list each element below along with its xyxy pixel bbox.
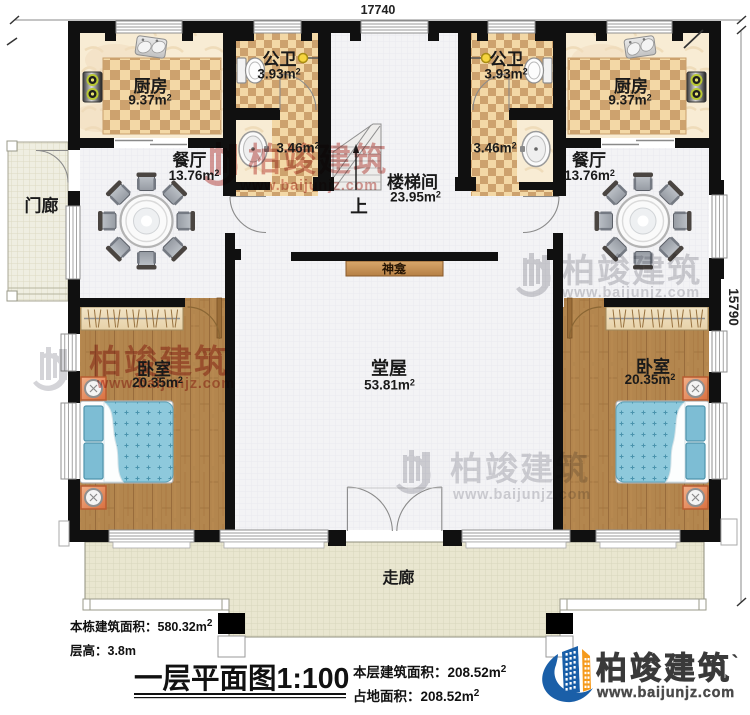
svg-text:神龛: 神龛 [382, 261, 407, 276]
svg-text:3.93m2: 3.93m2 [484, 67, 527, 82]
svg-text:柏竣建筑`: 柏竣建筑` [596, 651, 741, 686]
svg-text:3.46m2: 3.46m2 [473, 141, 516, 156]
svg-text:9.37m2: 9.37m2 [128, 93, 171, 108]
svg-text:3.46m2: 3.46m2 [276, 141, 319, 156]
svg-text:www.baijunjz.com: www.baijunjz.com [561, 285, 700, 301]
svg-text:餐厅: 餐厅 [572, 150, 606, 170]
svg-text:占地面积：208.52m2: 占地面积：208.52m2 [353, 688, 480, 704]
svg-text:13.76m2: 13.76m2 [564, 168, 615, 183]
svg-text:本层建筑面积：208.52m2: 本层建筑面积：208.52m2 [353, 664, 507, 680]
svg-text:上: 上 [350, 197, 368, 217]
svg-text:柏竣建筑: 柏竣建筑 [450, 450, 590, 487]
svg-text:13.76m2: 13.76m2 [169, 168, 220, 183]
svg-text:堂屋: 堂屋 [371, 358, 407, 379]
svg-text:餐厅: 餐厅 [173, 150, 207, 170]
svg-text:17740: 17740 [361, 3, 396, 17]
svg-text:9.37m2: 9.37m2 [608, 93, 651, 108]
svg-text:15790: 15790 [726, 288, 741, 326]
svg-text:门廊: 门廊 [25, 196, 59, 216]
svg-text:53.81m2: 53.81m2 [364, 378, 415, 393]
svg-text:本栋建筑面积：580.32m2: 本栋建筑面积：580.32m2 [70, 618, 213, 634]
svg-text:www.baijunjz.com: www.baijunjz.com [596, 685, 735, 701]
svg-text:www.baijunjz.com: www.baijunjz.com [239, 178, 378, 194]
svg-text:3.93m2: 3.93m2 [257, 67, 300, 82]
svg-text:层高：3.8m: 层高：3.8m [70, 643, 136, 658]
svg-text:柏竣建筑: 柏竣建筑 [562, 252, 702, 289]
svg-text:20.35m2: 20.35m2 [132, 375, 183, 390]
svg-text:一层平面图1:100: 一层平面图1:100 [134, 663, 349, 695]
svg-text:23.95m2: 23.95m2 [390, 190, 441, 205]
svg-text:www.baijunjz.com: www.baijunjz.com [452, 487, 591, 503]
svg-text:20.35m2: 20.35m2 [625, 372, 676, 387]
svg-text:走廊: 走廊 [381, 568, 414, 587]
